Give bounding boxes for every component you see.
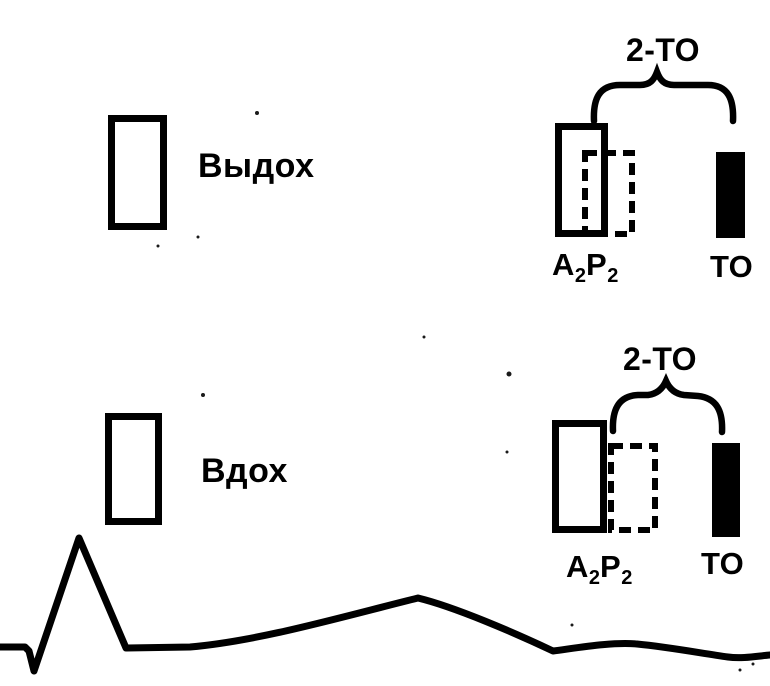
scan-specks (157, 111, 755, 672)
inspiration-2-to-brace-icon (613, 381, 722, 432)
p2-letter: P (600, 549, 621, 584)
p2-letter: P (586, 247, 607, 282)
inspiration-phase-box (109, 417, 159, 522)
scan-speck-icon (739, 669, 742, 672)
scan-speck-icon (197, 236, 200, 239)
expiration-2-to-brace-icon (594, 72, 733, 121)
a2-letter: A (552, 247, 575, 282)
scan-speck-icon (752, 663, 755, 666)
inspiration-a2-bar (556, 424, 604, 530)
scan-speck-icon (423, 336, 426, 339)
expiration-label: Выдох (198, 149, 315, 183)
scan-speck-icon (571, 624, 574, 627)
scan-speck-icon (507, 372, 512, 377)
scan-speck-icon (157, 245, 160, 248)
expiration-2-to-interval-label: 2-ТО (613, 34, 713, 66)
scan-speck-icon (201, 393, 205, 397)
ecg-trace (0, 538, 770, 671)
a2-subscript: 2 (575, 265, 586, 287)
a2-letter: A (566, 549, 589, 584)
expiration-opening-snap-label: ТО (710, 251, 753, 282)
expiration-a2-bar (559, 127, 605, 234)
expiration-a2p2-label: A2P2 (552, 249, 618, 286)
inspiration-2-to-interval-label: 2-ТО (610, 343, 710, 375)
inspiration-opening-snap-bar (712, 443, 740, 537)
inspiration-opening-snap-label: ТО (701, 548, 744, 579)
inspiration-label: Вдох (201, 454, 288, 488)
inspiration-a2p2-label: A2P2 (566, 551, 632, 588)
a2-subscript: 2 (589, 567, 600, 589)
p2-subscript: 2 (621, 567, 632, 589)
expiration-opening-snap-bar (716, 152, 745, 238)
figure-canvas: Выдох 2-ТО A2P2 ТО Вдох 2-ТО A2P2 ТО (0, 0, 770, 686)
expiration-phase-box (112, 119, 164, 227)
scan-speck-icon (506, 451, 509, 454)
p2-subscript: 2 (607, 265, 618, 287)
inspiration-p2-bar-dashed (611, 446, 655, 530)
scan-speck-icon (255, 111, 259, 115)
expiration-p2-bar-dashed (585, 153, 632, 234)
